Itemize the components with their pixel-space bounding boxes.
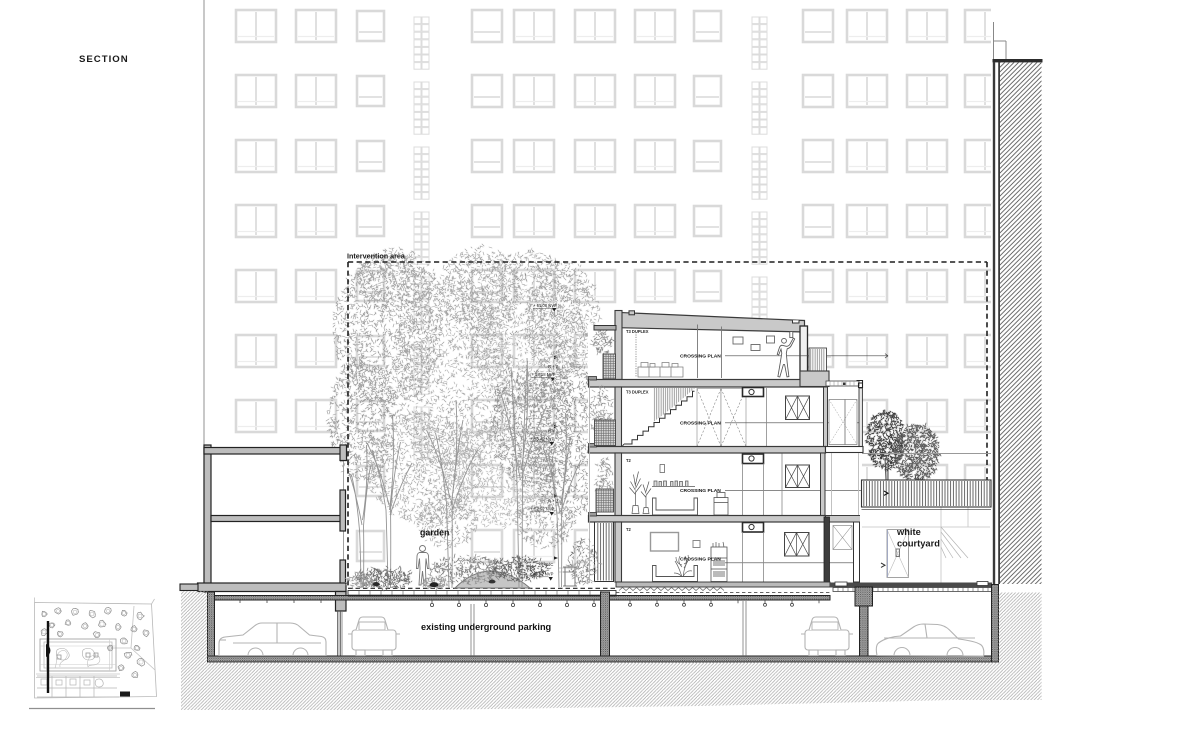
- svg-text:Intervention area: Intervention area: [347, 252, 406, 261]
- svg-text:R + 2: R + 2: [548, 429, 559, 434]
- svg-text:CROSSING PLAN: CROSSING PLAN: [680, 488, 721, 494]
- svg-text:T2: T2: [626, 527, 632, 532]
- svg-text:CROSSING PLAN: CROSSING PLAN: [680, 421, 721, 427]
- svg-text:CROSSING PLAN: CROSSING PLAN: [680, 354, 721, 360]
- svg-text:courtyard: courtyard: [897, 539, 940, 549]
- svg-text:CROSSING PLAN: CROSSING PLAN: [680, 557, 721, 563]
- svg-text:+ 55.42 NVP: + 55.42 NVP: [531, 437, 555, 442]
- svg-text:T3 DUPLEX: T3 DUPLEX: [626, 390, 649, 395]
- svg-text:garden: garden: [420, 528, 449, 538]
- svg-text:+ 58.18 NVP: + 58.18 NVP: [532, 372, 556, 377]
- svg-text:R + 2: R + 2: [548, 499, 559, 504]
- svg-text:R + 3: R + 3: [548, 364, 559, 369]
- svg-text:T3 DUPLEX: T3 DUPLEX: [626, 329, 649, 334]
- svg-text:+ 52.52 NVP: + 52.52 NVP: [531, 507, 555, 512]
- svg-text:white: white: [896, 527, 921, 537]
- svg-text:RdC: RdC: [545, 562, 553, 567]
- svg-text:+ 61.08 NVP: + 61.08 NVP: [533, 303, 557, 308]
- svg-text:SECTION: SECTION: [79, 54, 129, 65]
- svg-text:T2: T2: [626, 458, 632, 463]
- svg-text:+ 49.62 NVP: + 49.62 NVP: [530, 572, 554, 577]
- svg-text:existing underground parking: existing underground parking: [421, 622, 551, 632]
